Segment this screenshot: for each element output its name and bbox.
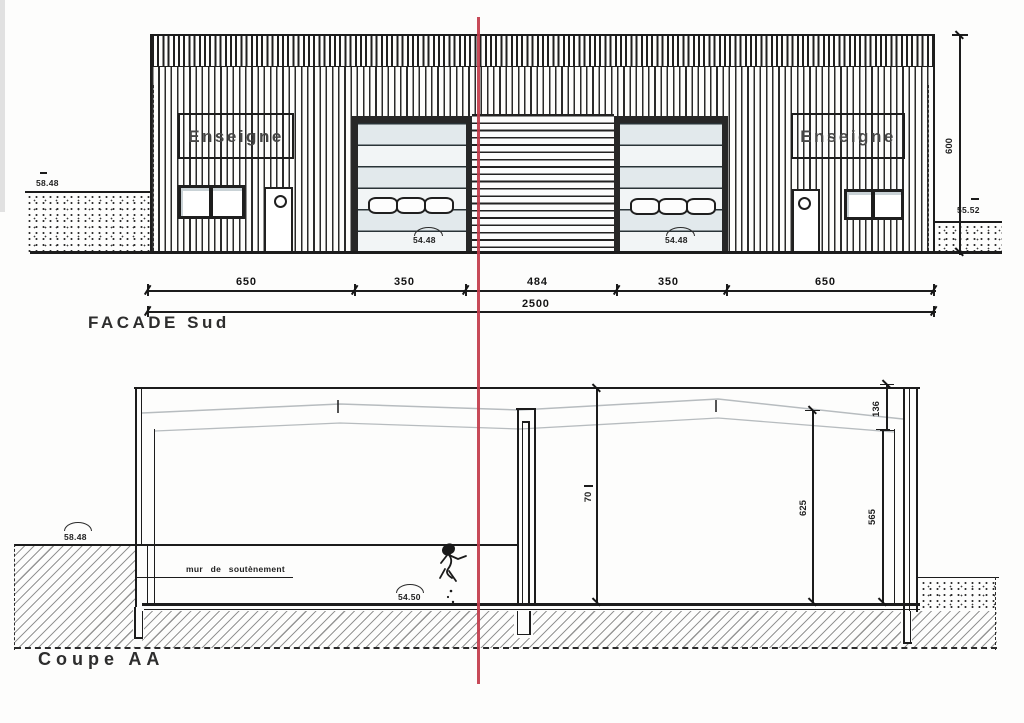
foundation-left-base [134,637,143,639]
door-sill-level-left: 54.48 [413,236,436,245]
dim-segment-1: 650 [236,277,257,288]
garage-door-left [352,116,472,253]
center-post-inner-l [522,421,524,604]
floor-level-label: 54.50 [398,593,421,602]
window-left-divider [209,188,213,216]
sign-board-right: Enseigne [791,113,905,159]
floor-slab-top [142,603,920,606]
door-porthole-left [274,195,287,208]
dim-total-label: 2500 [522,299,550,310]
right-interior-face [894,429,896,604]
platform-top-line [15,544,136,546]
foundation-right-base [903,642,912,644]
level-dash [971,198,979,200]
dim-eave-label: 625 [798,491,810,525]
platform-left-edge [14,544,15,650]
ground-right-edge [995,577,996,650]
window-right-divider [871,192,875,217]
dim-segment-5: 650 [815,277,836,288]
section-cut-red-line [477,17,481,684]
section-title: Coupe AA [38,650,164,668]
right-wall-mid [909,389,911,612]
facade-top-band [150,34,935,67]
height-dim-line [959,34,961,255]
section-ground-level: 58.48 [64,533,87,542]
ground-mound-left [25,193,150,252]
dim-wall-line [882,429,884,604]
facade-joint-dashed-left [153,85,154,251]
retaining-wall-label: mur de soutènement [186,565,285,574]
dim-roof-edge-label: 136 [871,392,883,426]
floor-slab-bottom [142,609,920,611]
right-grade-ground [919,579,997,610]
retaining-wall-underline [137,577,293,579]
garage-door-right-window-2 [658,198,688,215]
right-wall-inner [903,387,905,612]
sign-left-label: Enseigne [188,128,284,145]
dim-eave-line [812,410,814,604]
dim-wall-label: 565 [867,500,879,534]
level-dash [40,172,47,174]
center-post-left [517,408,519,604]
foundation-right-b [910,611,912,643]
garage-door-right-window-1 [630,198,660,215]
dim-total-line [147,311,936,313]
ground-line [30,251,1002,254]
ground-level-left: 58.48 [36,179,59,188]
dim-chain-line [147,290,936,292]
central-louver-panel [472,114,614,253]
scan-edge-strip [0,0,5,212]
dim-clear-height-line [596,387,598,604]
center-post-inner-r [528,421,530,604]
dim-segment-2: 350 [394,277,415,288]
level-arc [64,522,92,531]
foundation-center-b [529,611,531,635]
dim-roof-edge-line [886,384,888,431]
architectural-drawing: 54.48 54.48 Enseigne Enseigne 58.48 [0,0,1024,723]
earth-platform-left [15,545,135,648]
door-porthole-right [798,197,811,210]
retaining-wall-line [147,545,149,604]
garage-door-left-window-3 [424,197,454,214]
garage-door-right-window-3 [686,198,716,215]
ground-hatch [142,611,997,648]
height-dim-label: 600 [944,129,956,163]
ground-mound-right [935,223,1002,252]
sign-right-label: Enseigne [800,128,896,145]
facade-title: FACADE Sud [88,314,230,331]
foundation-center-a [517,611,519,635]
left-wall-inner [141,389,143,545]
person-sketch [432,541,470,605]
foundation-left-a [134,607,136,638]
dim-segment-3: 484 [527,277,548,288]
garage-door-left-window-1 [368,197,398,214]
dim-end-bar [880,430,895,432]
dim-clear-height-label: 70 [583,480,595,514]
roof-top-chord [134,387,920,390]
sign-board-left: Enseigne [178,113,294,159]
garage-door-left-window-2 [396,197,426,214]
door-sill-level-right: 54.48 [665,236,688,245]
center-post-right [534,408,536,604]
foundation-left-b [142,611,144,638]
facade-joint-dashed-right [928,85,929,251]
dim-segment-4: 350 [658,277,679,288]
foundation-center-base [517,634,531,636]
foundation-right-a [903,611,905,643]
left-wall-outer [135,387,137,607]
